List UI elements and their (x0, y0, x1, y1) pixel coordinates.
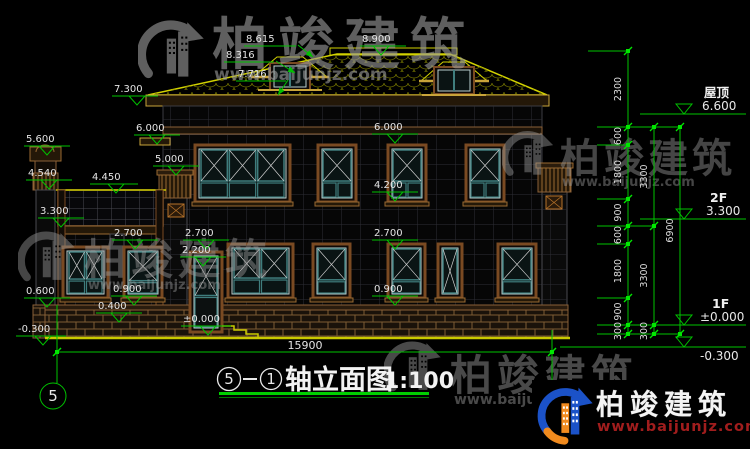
brand-url-text: www.baijunjz.com (597, 419, 750, 435)
watermark-0: 柏竣建筑www.baijunjz.com (141, 13, 476, 85)
level-name: 屋顶 (704, 85, 730, 100)
building-elevation (30, 48, 573, 338)
chain-dim: 6900 (665, 218, 676, 242)
window-sill (385, 202, 429, 206)
elevation-value: 7.716 (238, 69, 267, 80)
chain-dim: 1800 (613, 259, 624, 283)
chain-dim: 3300 (639, 164, 650, 188)
eave-fascia (146, 95, 549, 106)
right-level-2: 1F±0.000 (640, 296, 746, 325)
elevation-value: 0.600 (26, 286, 55, 297)
elevation-value: 0.900 (113, 284, 142, 295)
window (463, 145, 507, 206)
chain-dim: 900 (613, 302, 624, 320)
title-axis-from: 5 (224, 370, 234, 388)
elevation-value: 8.316 (226, 50, 255, 61)
cad-elevation-drawing: 柏竣建筑www.baijunjz.com柏竣建筑www.baijunjz.com… (0, 0, 750, 449)
window-sill (225, 298, 296, 302)
elevation-value: -0.300 (18, 324, 50, 335)
elevation-value: 2.200 (182, 245, 211, 256)
elevation-value: 5.000 (155, 154, 184, 165)
elevation-value: ±0.000 (183, 314, 220, 325)
pilaster-cap (159, 172, 191, 198)
elevation-value: 6.000 (374, 122, 403, 133)
chain-dim: 2300 (613, 77, 624, 101)
window (310, 244, 353, 302)
watermark-brand-text: 柏竣建筑 (84, 235, 272, 284)
level-value: -0.300 (700, 349, 739, 363)
elevation-value: 4.450 (92, 172, 121, 183)
window (315, 145, 359, 206)
right-level-0: 屋顶6.600 (640, 85, 746, 114)
watermark-logo-icon (141, 22, 203, 76)
porch-beam (58, 226, 163, 234)
elevation-value: 8.900 (362, 34, 391, 45)
chain-dim: 3300 (639, 263, 650, 287)
window (495, 244, 539, 302)
level-value: ±0.000 (700, 310, 744, 324)
chain-dim: 300 (613, 322, 624, 340)
level-value: 6.600 (702, 99, 736, 113)
elevation-canvas: 柏竣建筑www.baijunjz.com柏竣建筑www.baijunjz.com… (0, 0, 750, 449)
window (192, 145, 293, 206)
elevation-value: 0.900 (374, 284, 403, 295)
chain-dim: 600 (613, 226, 624, 244)
chain-dim: 1800 (613, 160, 624, 184)
window-sill (121, 298, 165, 302)
brand-name-text: 柏竣建筑 (596, 388, 732, 421)
title-underline (219, 392, 429, 395)
elevation-value: 7.300 (114, 84, 143, 95)
elevation-value: 2.700 (114, 228, 143, 239)
dim-chain-0: 230060018009006001800900300 (613, 47, 632, 340)
level-value: 3.300 (706, 204, 740, 218)
right-level-1: 2F3.300 (640, 190, 746, 219)
brick-base (45, 310, 568, 338)
elevation-value: 0.400 (98, 301, 127, 312)
chain-dim: 600 (613, 127, 624, 145)
chain-dim: 900 (613, 203, 624, 221)
window-sill (192, 202, 293, 206)
elevation-value: 2.700 (374, 228, 403, 239)
level-name: 2F (710, 190, 727, 205)
elevation-value: 2.700 (185, 228, 214, 239)
title-axis-to: 1 (266, 370, 276, 388)
floor-band-molding (163, 127, 542, 134)
chain-dim: 300 (639, 322, 650, 340)
grid-bubble-left-number: 5 (48, 387, 58, 405)
watermark-url-text: www.baijunjz.com (88, 278, 221, 293)
brand-logo: 柏竣建筑www.baijunjz.com (532, 380, 750, 449)
elevation-value: 4.200 (374, 180, 403, 191)
elevation-value: 3.300 (40, 206, 69, 217)
drawing-title: 轴立面图 (285, 364, 393, 396)
window-sill (310, 298, 353, 302)
window-sill (435, 298, 465, 302)
elevation-value: 8.615 (246, 34, 275, 45)
elevation-value: 6.000 (136, 123, 165, 134)
window (435, 244, 465, 302)
level-name: 1F (712, 296, 729, 311)
overall-width-dim: 15900 (288, 339, 323, 352)
window-sill (315, 202, 359, 206)
window-sill (495, 298, 539, 302)
elevation-value: 5.600 (26, 134, 55, 145)
elevation-value: 4.540 (28, 168, 57, 179)
window-sill (463, 202, 507, 206)
drawing-scale: 1:100 (384, 369, 454, 394)
